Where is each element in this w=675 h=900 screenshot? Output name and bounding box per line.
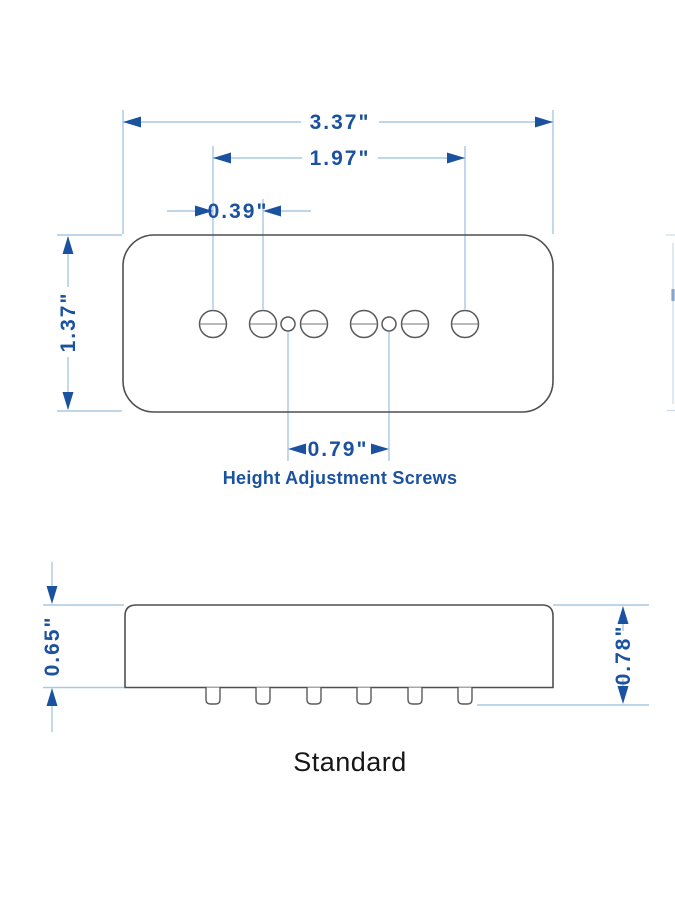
dim-pole-span-value: 1.97" [310, 147, 371, 170]
pole-screw [351, 311, 378, 338]
dim-adjust-screw-spacing-value: 0.79" [308, 438, 369, 461]
dim-side-body-height: 0.65" [41, 562, 64, 732]
dim-side-overall-height: 0.78" [612, 606, 635, 704]
dim-side-overall-height-value: 0.78" [612, 625, 635, 686]
pickup-cover-outline [123, 235, 553, 412]
pole-screw-tip [256, 688, 270, 705]
side-view-extension-lines [43, 605, 649, 705]
pole-screw-tip [408, 688, 422, 705]
pickup-side-profile [125, 605, 553, 688]
side-view: 0.65" 0.78" [41, 562, 649, 732]
pole-screws [200, 311, 479, 338]
dim-pole-spacing: 0.39" [167, 200, 311, 223]
top-view-extension-lines [57, 110, 553, 461]
pole-screw [301, 311, 328, 338]
dim-side-body-height-value: 0.65" [41, 616, 64, 677]
dim-pole-spacing-value: 0.39" [208, 200, 269, 223]
height-adjustment-screw [281, 317, 295, 331]
pole-screw-tip [307, 688, 321, 705]
dim-adjust-screw-spacing: 0.79" [288, 438, 389, 461]
dim-overall-width-value: 3.37" [310, 111, 371, 134]
height-adjustment-screws-label: Height Adjustment Screws [223, 468, 458, 488]
top-view: 3.37" 1.97" 0.39" 1.37" [57, 110, 553, 488]
pole-screw-tip [458, 688, 472, 705]
height-adjustment-screws [281, 317, 396, 331]
height-adjustment-screw [382, 317, 396, 331]
dim-overall-width: 3.37" [123, 111, 553, 134]
pole-screw [402, 311, 429, 338]
variant-label: Standard [293, 747, 407, 777]
dim-pole-span: 1.97" [213, 147, 465, 170]
pickup-dimension-diagram: 3.37" 1.97" 0.39" 1.37" [0, 0, 675, 900]
diagram-canvas: 3.37" 1.97" 0.39" 1.37" [0, 0, 675, 900]
pole-screw-tips [206, 688, 472, 705]
pole-screw [250, 311, 277, 338]
pole-screw-tip [357, 688, 371, 705]
dim-body-depth-value: 1.37" [57, 292, 80, 353]
pole-screw [200, 311, 227, 338]
pole-screw [452, 311, 479, 338]
pole-screw-tip [206, 688, 220, 705]
dim-body-depth: 1.37" [57, 236, 80, 410]
adjacent-diagram-fragment [666, 235, 675, 411]
